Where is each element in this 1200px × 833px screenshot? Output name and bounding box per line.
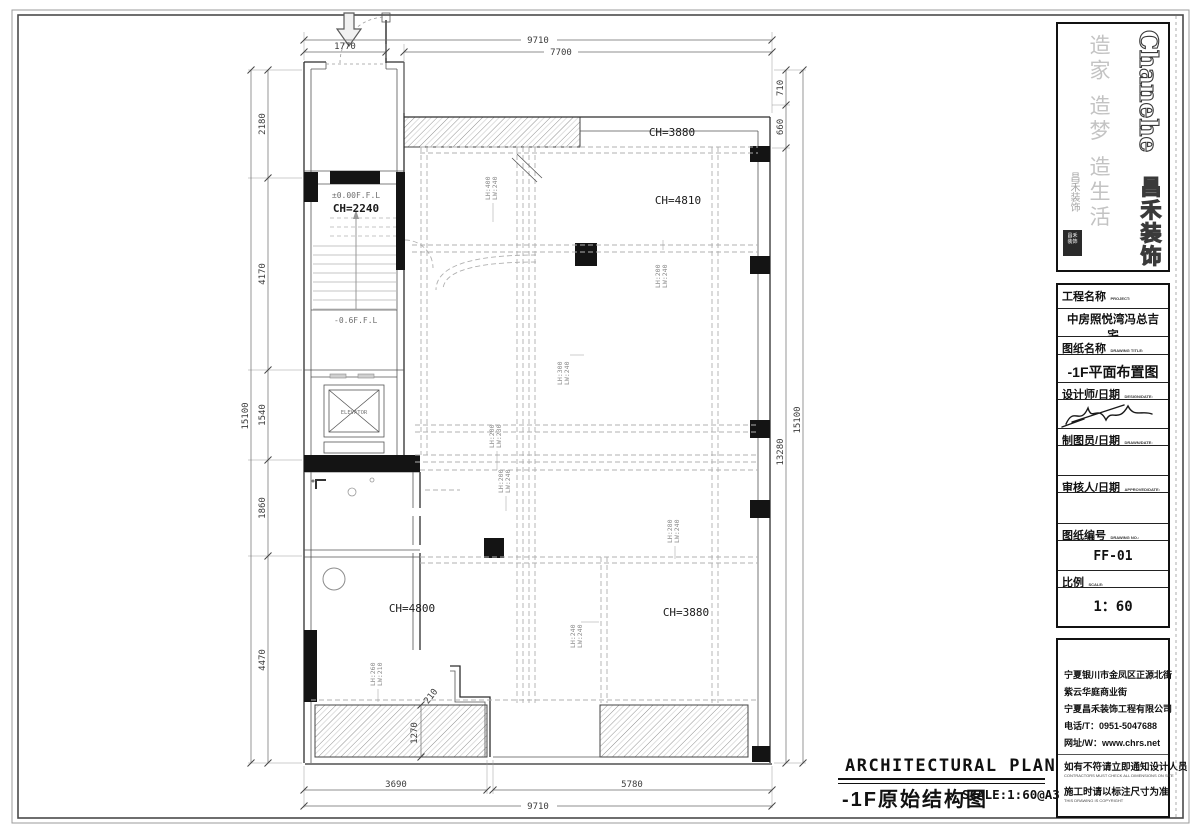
dim-top-overall: 9710: [527, 36, 549, 46]
beam-lw: LW:240: [504, 469, 512, 493]
drawing-title-en: ARCHITECTURAL PLAN: [845, 756, 1056, 776]
drawing-no-label-row: 图纸编号 DRAWING NO.:: [1058, 524, 1168, 541]
dim-bottom-overall: 9710: [527, 802, 549, 812]
level-lower-label: -0.6F.F.L: [334, 316, 378, 325]
drawing-title-label: 图纸名称: [1062, 343, 1106, 355]
project-label: 工程名称: [1062, 291, 1106, 303]
notice-1: 如有不符请立即通知设计人员: [1064, 759, 1162, 773]
stairs: [313, 210, 396, 309]
ch-label-top: CH=3880: [649, 126, 695, 139]
drawing-title-label-en: DRAWING TITLE:: [1110, 348, 1143, 353]
brand-name-cn: 昌禾装饰: [1134, 176, 1164, 272]
designer-label-row: 设计师/日期 DESIGN/DATE:: [1058, 383, 1168, 400]
dim-top-entry: 1770: [334, 42, 356, 52]
beam-label-4: LH:200 LW:230: [488, 424, 503, 470]
fixtures: [312, 478, 375, 590]
beam-lw: LW:240: [576, 624, 584, 648]
dim-left-b: 4170: [258, 263, 268, 285]
project-value-row: 中房照悦湾冯总吉宅 (69-101): [1058, 309, 1168, 337]
dim-left-e: 4470: [258, 649, 268, 671]
dim-wall-height: 1270: [410, 722, 420, 744]
dim-wall-thickness: 210: [422, 687, 440, 706]
designer-label-en: DESIGN/DATE:: [1125, 394, 1153, 399]
dim-bottom-b: 5780: [621, 780, 643, 790]
ch-label-stair: CH=2240: [333, 202, 379, 215]
ceiling-beam-dashed-lines: [311, 147, 758, 703]
drawing-no-label-en: DRAWING NO.:: [1110, 535, 1139, 540]
drawing-title-value: -1F平面布置图: [1058, 355, 1168, 383]
sheet-border: [12, 10, 1189, 823]
logo-box: Chanehe 昌禾装饰 造家 造梦 造生活 昌禾装饰 昌禾 装饰: [1056, 22, 1170, 272]
elevator-door-left: [330, 374, 346, 378]
dim-left-c: 1540: [258, 404, 268, 426]
scale-value: 1：60: [1058, 588, 1168, 620]
dim-right-overall: 15100: [793, 406, 803, 433]
ch-label-room-left: CH=4800: [389, 602, 435, 615]
beam-lw: LW:240: [673, 519, 681, 543]
beam-lw: LW:240: [491, 176, 499, 200]
brand-script: 昌禾装饰: [1066, 172, 1081, 232]
dim-bottom-a: 3690: [385, 780, 407, 790]
floor-plan: ELEVATOR: [241, 13, 807, 812]
company-name: 宁夏昌禾装饰工程有限公司: [1064, 702, 1162, 715]
website: 网址/W：www.chrs.net: [1064, 736, 1162, 749]
beam-label-7: LH:240 LW:240: [569, 622, 599, 648]
approver-label-en: APPROVED/DATE:: [1125, 487, 1160, 492]
scale-label-en: SCALE:: [1088, 582, 1103, 587]
beam-lw: LW:240: [563, 361, 571, 385]
beam-label-6: LH:280 LW:240: [666, 519, 681, 559]
beam-lw: LW:230: [495, 424, 503, 448]
beam-label-5: LH:200 LW:240: [497, 469, 512, 511]
beam-label-3: LH:300 LW:240: [556, 355, 584, 385]
approver-value-cell: [1058, 493, 1168, 524]
phone-number: 电话/T：0951-5047688: [1064, 719, 1162, 732]
notice-2-en: THIS DRAWING IS COPYRIGHT: [1064, 798, 1162, 803]
scale-label-row: 比例 SCALE:: [1058, 571, 1168, 588]
designer-signature-cell: [1058, 400, 1168, 429]
seal-text-2: 装饰: [1064, 239, 1081, 245]
title-block: 工程名称 PROJECT: 中房照悦湾冯总吉宅 (69-101) 图纸名称 DR…: [1056, 283, 1170, 628]
room-labels: CH=3880 CH=4810 ±0.00F.F.L CH=2240 -0.6F…: [332, 126, 709, 619]
brand-name-en: Chanehe: [1134, 30, 1163, 180]
drawing-scale-note: SCALE:1:60@A3: [962, 787, 1060, 802]
elevator-label: ELEVATOR: [341, 410, 368, 416]
drawing-title-label-row: 图纸名称 DRAWING TITLE:: [1058, 337, 1168, 355]
approver-label: 审核人/日期: [1062, 482, 1120, 493]
dim-right-b: 660: [776, 119, 786, 135]
notice-1-en: CONTRACTORS MUST CHECK ALL DIMENSIONS ON…: [1064, 773, 1162, 778]
elevator: ELEVATOR: [324, 374, 384, 453]
approver-label-row: 审核人/日期 APPROVED/DATE:: [1058, 476, 1168, 493]
scale-label: 比例: [1062, 577, 1084, 588]
drafter-label-row: 制图员/日期 DRAWN/DATE:: [1058, 429, 1168, 446]
round-column: [323, 568, 345, 590]
corner-fixture: [316, 480, 326, 489]
notice-2: 施工时请以标注尺寸为准: [1064, 784, 1162, 798]
dim-right-chain: 13280: [776, 438, 786, 465]
plan-walls: [304, 62, 772, 764]
drafter-label-en: DRAWN/DATE:: [1125, 440, 1153, 445]
dim-right-a: 710: [776, 80, 786, 96]
dim-left-overall: 15100: [241, 402, 251, 429]
project-name: 中房照悦湾冯总吉宅: [1062, 311, 1164, 337]
ch-label-room-right: CH=3880: [663, 606, 709, 619]
drawing-sheet: ELEVATOR: [0, 0, 1200, 833]
project-label-row: 工程名称 PROJECT:: [1058, 285, 1168, 309]
dim-left-d: 1860: [258, 497, 268, 519]
level-entry-label: ±0.00F.F.L: [332, 191, 380, 200]
plan-canvas: ELEVATOR: [0, 0, 1200, 833]
ch-label-hall: CH=4810: [655, 194, 701, 207]
drafter-value-cell: [1058, 446, 1168, 476]
designer-signature: [1058, 400, 1166, 429]
dim-top-main: 7700: [550, 48, 572, 58]
company-seal: 昌禾 装饰: [1063, 230, 1082, 256]
project-label-en: PROJECT:: [1110, 296, 1130, 301]
beam-lw: LW:210: [376, 662, 384, 686]
drawing-no-label: 图纸编号: [1062, 530, 1106, 541]
interior-door-leaf: [512, 154, 542, 182]
dimensions: 9710 1770 7700 710 660 13280 15100 2180 …: [241, 32, 807, 812]
drafter-label: 制图员/日期: [1062, 435, 1120, 446]
drawing-number: FF-01: [1058, 541, 1168, 571]
address-line-2: 紫云华庭商业街: [1064, 685, 1162, 698]
contact-divider: [1058, 754, 1168, 755]
entry-door: [337, 13, 542, 182]
beam-label-8: LH:260 LW:210: [369, 662, 384, 702]
brand-slogan-calligraphy: 造家 造梦 造生活: [1084, 34, 1114, 264]
beam-label-2: LH:200 LW:240: [654, 240, 669, 288]
dim-left-a: 2180: [258, 113, 268, 135]
contact-box: 宁夏银川市金凤区正源北街 紫云华庭商业街 宁夏昌禾装饰工程有限公司 电话/T：0…: [1056, 638, 1170, 818]
elevator-door-right: [358, 374, 374, 378]
address-line-1: 宁夏银川市金凤区正源北街: [1064, 668, 1162, 681]
beam-lw: LW:240: [661, 264, 669, 288]
beam-label-1: LH:400 LW:240: [484, 176, 499, 222]
designer-label: 设计师/日期: [1062, 389, 1120, 400]
